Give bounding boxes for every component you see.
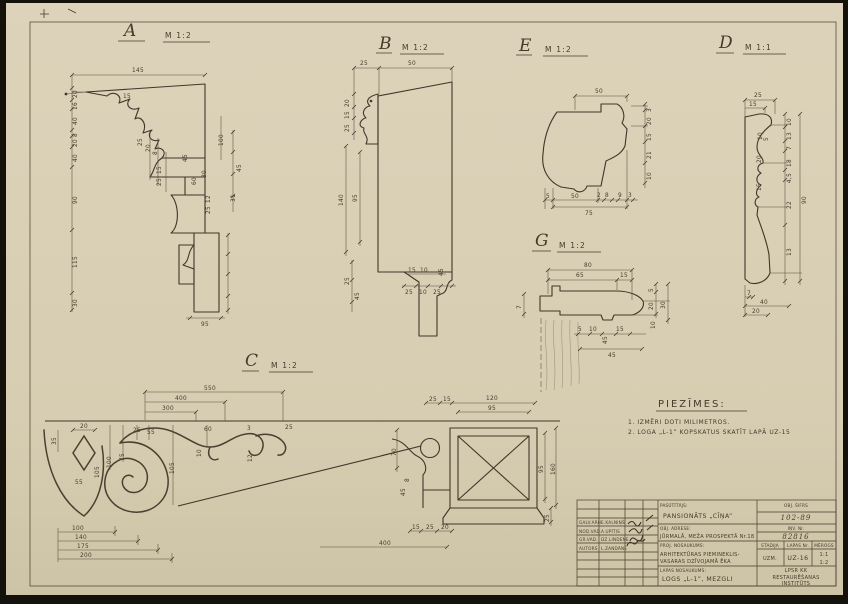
dim-label: 3: [647, 108, 653, 112]
dim-label: 7: [787, 146, 793, 150]
dim-label: 30: [73, 299, 79, 307]
dim-label: 25: [433, 290, 441, 296]
dim-label: 10: [787, 118, 793, 126]
dim-label: 105: [170, 462, 176, 474]
dim-label: 50: [408, 61, 416, 67]
dim-label: 50: [571, 194, 579, 200]
dim-label: 16: [73, 102, 79, 110]
dim-label: 15: [616, 327, 624, 333]
tb-stage-label: STADIJA: [761, 543, 779, 548]
dim-label: 20: [80, 424, 88, 430]
dim-label: 10: [647, 172, 653, 180]
dim-label: 12: [206, 195, 212, 203]
dim-label: 95: [201, 322, 209, 328]
section-letter: A: [122, 21, 137, 41]
tb-org-line: RESTAURĒŠANAS: [772, 574, 819, 581]
dim-label: 25: [157, 178, 163, 186]
dim-label: 5: [578, 327, 582, 333]
dim-label: 5: [546, 194, 550, 200]
dim-label: 7: [517, 305, 523, 309]
dim-label: 40: [73, 154, 79, 162]
tb-client-label: PASŪTĪTĀJS:: [660, 503, 688, 508]
dim-label: 25: [138, 138, 144, 146]
dim-label: 45: [439, 268, 445, 276]
dim-label: 15: [647, 133, 653, 141]
dim-label: 160: [551, 463, 557, 475]
dim-label: 15: [620, 273, 628, 279]
dim-label: 200: [80, 553, 92, 559]
dim-label: 15: [443, 397, 451, 403]
dim-label: 25: [345, 124, 351, 132]
tb-scale-label: MĒROGS: [814, 543, 834, 548]
tb-client: PANSIONĀTS „CĪŅA”: [663, 511, 733, 521]
dim-label: 22: [787, 201, 793, 209]
dim-label: 15: [412, 525, 420, 531]
dim-label: 20: [757, 155, 763, 163]
tb-address-label: OBJ. ADRESE:: [660, 526, 691, 531]
tb-name: A.UPĪTIS: [601, 529, 620, 534]
dim-label: 140: [339, 194, 345, 206]
dim-label: 65: [576, 273, 584, 279]
tb-code-label: OBJ. ŠIFRS: [784, 503, 808, 508]
dim-label: 20: [345, 99, 351, 107]
dim-label: 25: [405, 290, 413, 296]
dim-label: 25: [545, 514, 551, 522]
dim-label: 55: [147, 430, 155, 436]
dim-label: 4,5: [787, 173, 793, 183]
tb-org-line: INSTITŪTS: [782, 580, 811, 587]
dim-label: 25: [285, 425, 293, 431]
dim-label: 100: [72, 526, 84, 532]
dim-label: 2: [597, 193, 601, 199]
tb-role: GALV.ARH.: [579, 520, 603, 525]
notes-line: 2. LOGA „L-1” KOPSKATUS SKATĪT LAPĀ UZ-1…: [628, 429, 790, 436]
dim-label: 5: [649, 288, 655, 292]
dim-label: 145: [132, 68, 144, 74]
dim-label: 95: [353, 194, 359, 202]
dim-label: 120: [486, 396, 498, 402]
dim-label: 100: [219, 134, 225, 146]
dim-label: 20: [146, 144, 152, 152]
dim-label: 25: [345, 277, 351, 285]
dim-label: 9: [618, 193, 622, 199]
dim-label: 45: [603, 336, 609, 344]
dim-label: 95: [539, 465, 545, 473]
dim-label: 15: [749, 102, 757, 108]
tb-stage: UZM.: [763, 556, 777, 562]
dim-label: 15: [408, 268, 416, 274]
dim-label: 40: [73, 117, 79, 125]
dim-label: 75: [585, 211, 593, 217]
dim-label: 45: [355, 292, 361, 300]
dim-label: 35: [52, 437, 58, 445]
dim-label: 90: [802, 196, 808, 204]
dim-label: 45: [401, 488, 407, 496]
dim-label: 45: [237, 164, 243, 172]
dim-label: 20: [73, 90, 79, 98]
tb-org-line: LPSR KK: [785, 568, 808, 574]
dim-label: 400: [379, 541, 391, 547]
dim-label: 20: [73, 139, 79, 147]
tb-name: E.KALNIŅŠ: [601, 520, 625, 525]
section-scale: M 1:2: [271, 361, 298, 370]
notes-title: PIEZĪMES:: [658, 397, 726, 410]
section-scale: M 1:2: [559, 241, 586, 250]
dim-label: 30: [661, 301, 667, 309]
dim-label: 115: [73, 256, 79, 268]
dim-label: 8: [405, 478, 411, 482]
leader-dot: [65, 93, 68, 96]
dim-label: 15: [757, 183, 763, 191]
dim-label: 20: [441, 525, 449, 531]
dim-label: 25: [426, 525, 434, 531]
dim-label: 3: [247, 426, 251, 432]
dim-label: 10: [651, 321, 657, 329]
dim-label: 10: [589, 327, 597, 333]
tb-scale-1: 1:1: [820, 552, 829, 558]
dim-label: 8: [605, 193, 609, 199]
dim-label: 31: [231, 194, 237, 202]
dim-label: 40: [760, 300, 768, 306]
dim-label: 70: [392, 448, 398, 456]
tb-role: AUTORS: [579, 546, 598, 551]
tb-role: GR.VAD.: [579, 537, 598, 542]
dim-label: 25: [754, 93, 762, 99]
drawing-sheet: A M 1:2 145 20 16 40 8 20 40 90 115 30 1…: [0, 0, 848, 600]
dim-label: 10: [420, 268, 428, 274]
dim-label: 18: [787, 159, 793, 167]
dim-label: 100: [107, 456, 113, 468]
dim-label: 10: [197, 449, 203, 457]
tb-address: JŪRMALĀ, MEŽA PROSPEKTĀ Nr.18: [659, 532, 754, 540]
dim-label: 21: [647, 151, 653, 159]
notes-line: 1. IZMĒRI DOTI MILIMETROS.: [628, 419, 730, 426]
tb-name: DZ.LINDENE: [601, 537, 629, 542]
tb-code: 102-89: [781, 514, 812, 522]
tb-project-line: VASARAS DZĪVOJAMĀ ĒKA: [660, 558, 731, 565]
dim-label: 55: [75, 480, 83, 486]
dim-label: 95: [488, 406, 496, 412]
tb-scale-2: 1:2: [820, 560, 829, 566]
dim-label: 50: [595, 89, 603, 95]
section-scale: M 1:1: [745, 43, 772, 52]
dim-label: 20: [649, 302, 655, 310]
dim-label: 15: [123, 94, 131, 100]
dim-label: 20: [752, 309, 760, 315]
dim-label: 140: [75, 535, 87, 541]
leader-dot: [370, 100, 373, 103]
dim-label: 75: [120, 453, 126, 461]
dim-label: 25: [360, 61, 368, 67]
section-letter: B: [378, 34, 393, 54]
dim-label: 20: [647, 117, 653, 125]
tb-inv-label: INV. Nr.: [788, 526, 805, 531]
dim-label: 90: [73, 196, 79, 204]
section-letter: D: [718, 33, 734, 53]
dim-label: 25: [429, 397, 437, 403]
section-letter: C: [245, 351, 259, 371]
dim-label: 105: [95, 466, 101, 478]
dim-label: 300: [162, 406, 174, 412]
dim-label: 7: [747, 291, 751, 297]
section-letter: G: [535, 231, 550, 251]
dim-label: 400: [175, 396, 187, 402]
dim-label: 8: [73, 133, 79, 137]
section-scale: M 1:2: [165, 31, 192, 40]
dim-label: 25: [133, 428, 141, 434]
dim-label: 12: [248, 454, 254, 462]
dim-label: 25: [206, 206, 212, 214]
dim-label: 60: [192, 177, 198, 185]
dim-label: 175: [77, 544, 89, 550]
dim-label: 13: [787, 248, 793, 256]
dim-label: 15: [345, 111, 351, 119]
dim-label: 15: [157, 166, 163, 174]
dim-label: 3: [628, 193, 632, 199]
tb-sheetno: UZ-16: [787, 555, 808, 562]
dim-label: 60: [204, 427, 212, 433]
tb-project-line: ARHITEKTŪRAS PIEMINEKLIS-: [660, 551, 740, 558]
tb-sheet-title: LOGS „L-1”, MEZGLI: [662, 576, 733, 583]
section-letter: E: [518, 36, 532, 56]
dim-label: 45: [183, 154, 189, 162]
tb-sheet-label: LAPAS NOSAUKUMS:: [660, 568, 706, 573]
dim-label: 8: [153, 151, 159, 155]
tb-name: L.ZANDĀNE: [601, 546, 627, 551]
dim-label: 13: [787, 132, 793, 140]
dim-label: 45: [608, 353, 616, 359]
blueprint-svg: A M 1:2 145 20 16 40 8 20 40 90 115 30 1…: [0, 0, 848, 600]
tb-sheetno-label: LAPAS Nr.: [787, 543, 809, 548]
paper: [6, 3, 843, 595]
dim-label: 80: [584, 263, 592, 269]
tb-role: NOD.VAD.: [579, 529, 602, 534]
dim-label: 550: [204, 386, 216, 392]
section-scale: M 1:2: [545, 45, 572, 54]
tb-project-label: PROJ. NOSAUKUMS:: [660, 543, 704, 548]
section-scale: M 1:2: [402, 43, 429, 52]
tb-inv: 82816: [782, 533, 809, 541]
dim-label: 5: [764, 137, 770, 141]
dim-label: 10: [419, 290, 427, 296]
dim-label: 80: [202, 170, 208, 178]
